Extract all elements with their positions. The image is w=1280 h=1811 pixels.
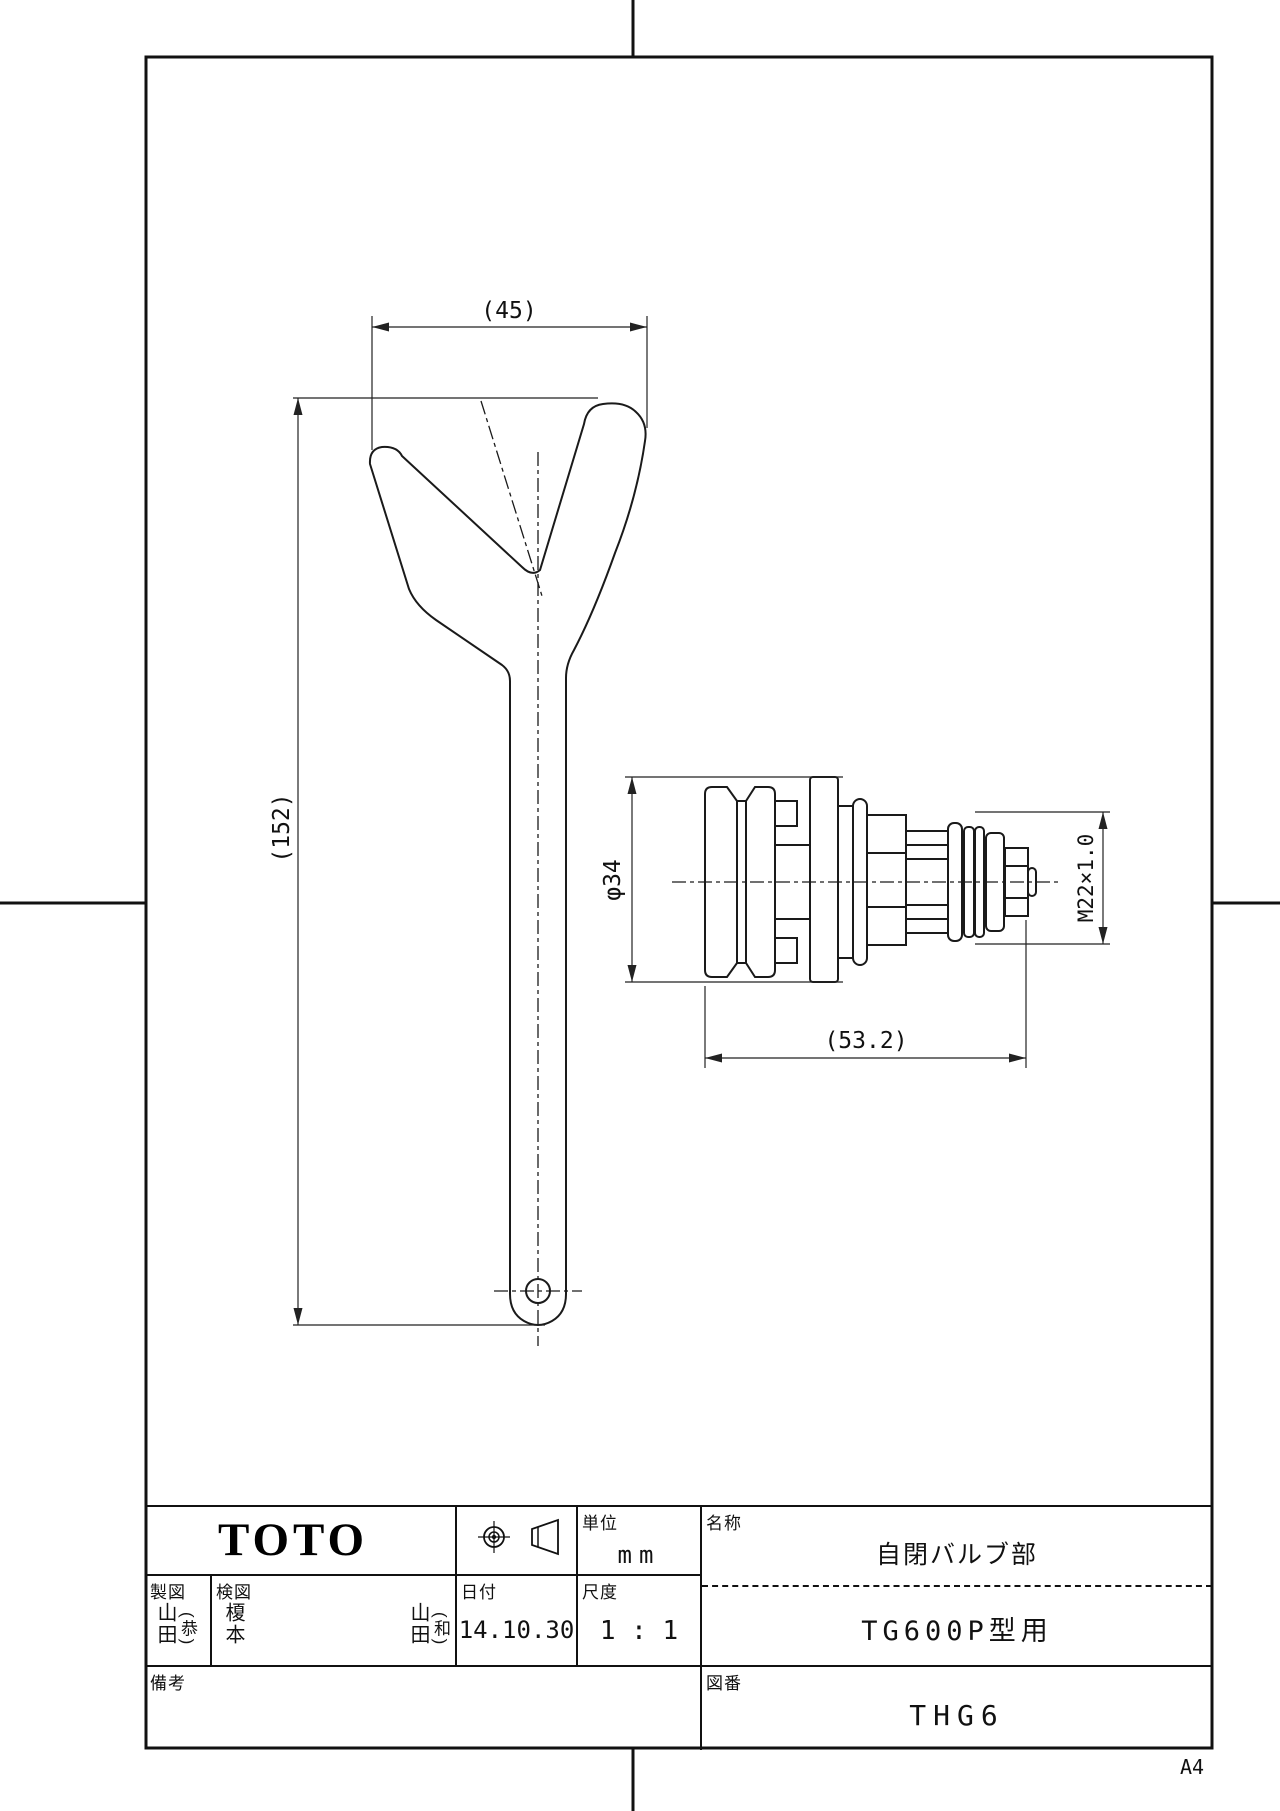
- valve-hex-body: [867, 815, 906, 945]
- scale-label: 尺度: [582, 1578, 618, 1603]
- logo-cell: TOTO: [146, 1507, 457, 1574]
- checker-name-1: 榎本: [222, 1602, 244, 1646]
- dim-valve-diameter: φ34: [600, 859, 626, 901]
- title-block: TOTO 単位 mm 名称 自閉バルブ部 製図 山田(恭) 検図 榎本 山田(和…: [146, 1505, 1212, 1748]
- drafter-label: 製図: [150, 1578, 186, 1603]
- valve-flange-large: [810, 777, 838, 982]
- valve-cap: [705, 787, 775, 977]
- name-label: 名称: [706, 1509, 742, 1534]
- drawing-number: THG6: [702, 1699, 1212, 1732]
- drafter-name: 山田: [154, 1602, 176, 1646]
- arrowhead: [1009, 1054, 1026, 1063]
- model-application: TG600P型用: [702, 1609, 1212, 1648]
- arrowhead: [1099, 927, 1108, 944]
- drawing-frame: [146, 57, 1212, 1748]
- drawing-sheet: (45) (152): [0, 0, 1280, 1811]
- scale-cell: 尺度 1 : 1: [578, 1574, 702, 1665]
- dim-valve-length: (53.2): [824, 1028, 907, 1054]
- arrowhead: [628, 777, 637, 794]
- arrowhead: [372, 323, 389, 332]
- unit-label: 単位: [582, 1509, 618, 1534]
- arrowhead: [628, 965, 637, 982]
- part-name-cell: 名称 自閉バルブ部: [702, 1507, 1212, 1585]
- dim-fork-width: (45): [481, 298, 536, 324]
- paper-size-label: A4: [1180, 1755, 1204, 1779]
- unit-value: mm: [578, 1541, 700, 1569]
- part-name: 自閉バルブ部: [702, 1535, 1212, 1571]
- checker-name-2-suffix: (和): [429, 1612, 451, 1646]
- drawing-number-cell: 図番 THG6: [702, 1665, 1212, 1750]
- projection-symbol-cell: [457, 1507, 578, 1574]
- valve-tab-bottom: [775, 938, 797, 963]
- arrowhead: [630, 323, 647, 332]
- dim-thread-spec: M22×1.0: [1074, 834, 1098, 923]
- date-value: 14.10.30: [457, 1616, 576, 1644]
- drafter-suffix: (恭): [176, 1612, 198, 1646]
- date-label: 日付: [461, 1578, 497, 1603]
- arrowhead: [705, 1054, 722, 1063]
- drawing-number-label: 図番: [706, 1669, 742, 1694]
- dim-overall-length: (152): [269, 793, 295, 862]
- valve-drawing: [705, 777, 1036, 982]
- wrench-dimensions: [293, 316, 647, 1325]
- unit-cell: 単位 mm: [578, 1507, 702, 1574]
- valve-tab-top: [775, 801, 797, 826]
- remarks-label: 備考: [150, 1669, 186, 1694]
- arrowhead: [1099, 812, 1108, 829]
- checker-cell: 検図 榎本 山田(和): [212, 1574, 457, 1665]
- drafter-cell: 製図 山田(恭): [146, 1574, 212, 1665]
- arrowhead: [294, 1308, 303, 1325]
- wrench-fork-axis-centerline: [481, 401, 542, 596]
- toto-logo: TOTO: [218, 1513, 368, 1567]
- date-cell: 日付 14.10.30: [457, 1574, 578, 1665]
- model-cell: TG600P型用: [702, 1585, 1212, 1665]
- remarks-cell: 備考: [146, 1665, 702, 1750]
- checker-label: 検図: [216, 1578, 252, 1603]
- checker-name-2: 山田: [407, 1602, 429, 1646]
- scale-value: 1 : 1: [578, 1616, 700, 1646]
- arrowhead: [294, 398, 303, 415]
